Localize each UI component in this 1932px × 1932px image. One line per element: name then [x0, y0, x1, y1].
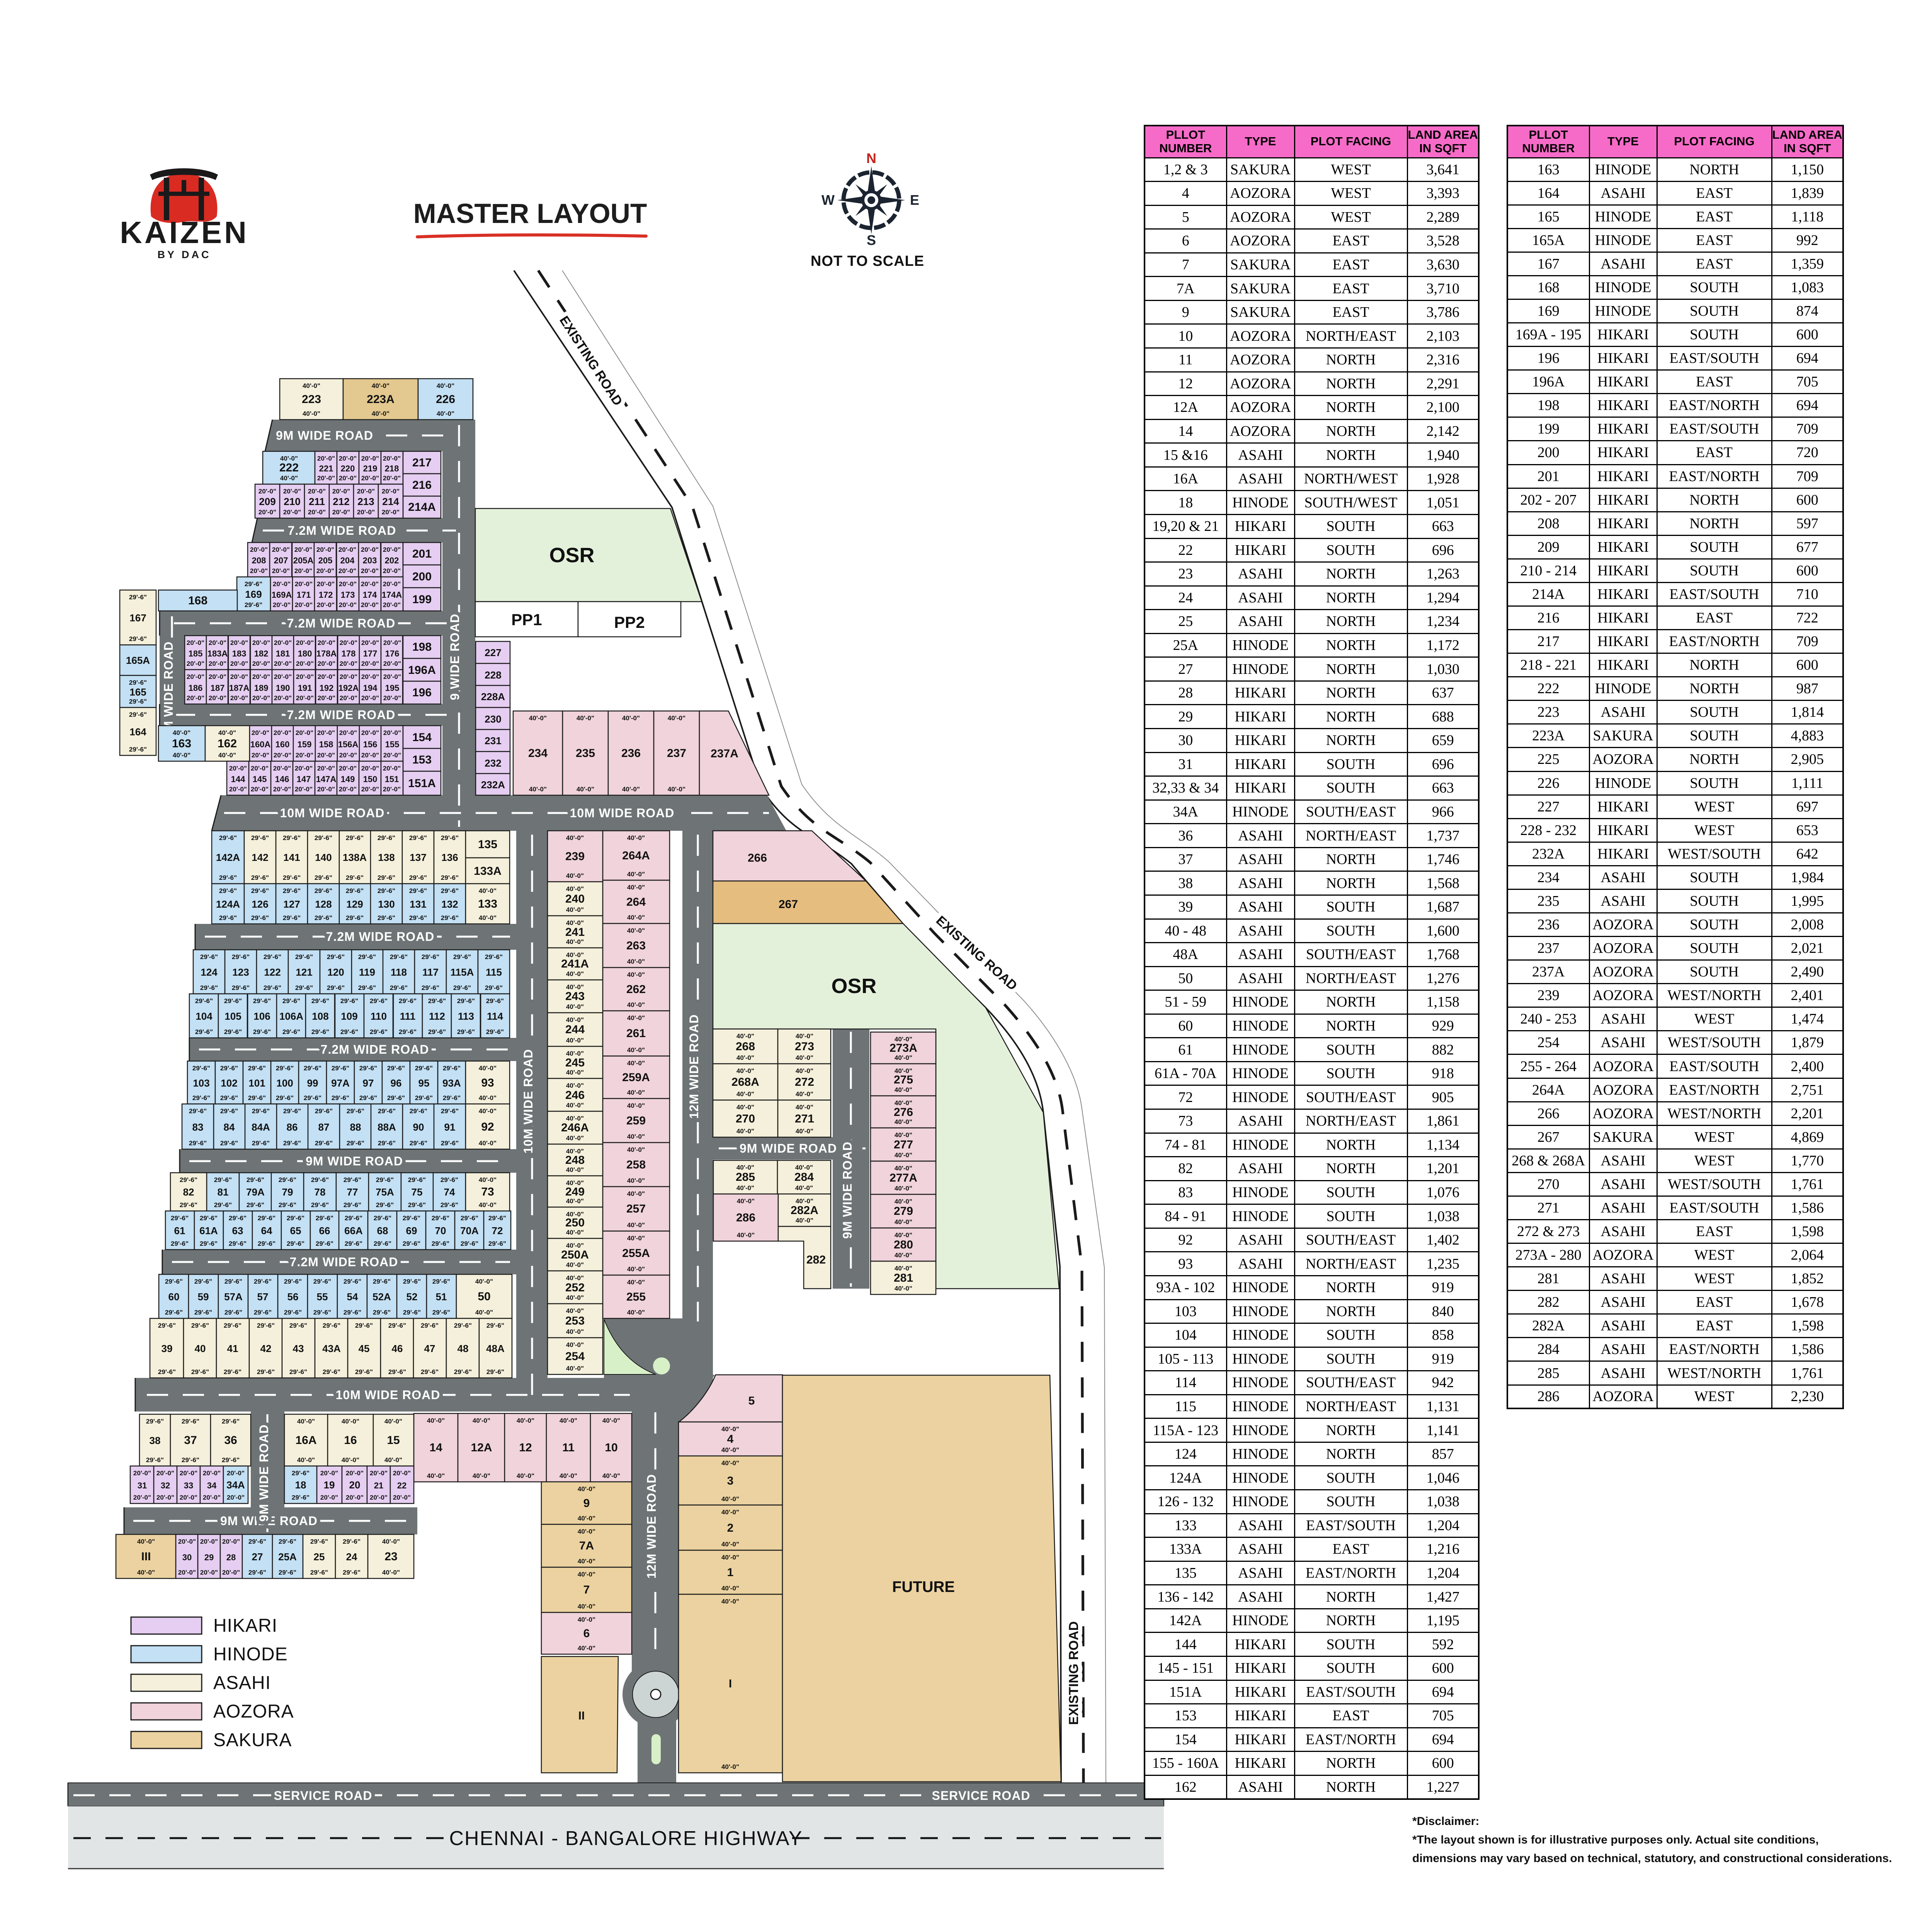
svg-text:20'-0": 20'-0" — [318, 673, 335, 680]
svg-text:40'-0": 40'-0" — [475, 1278, 493, 1285]
svg-text:29'-6": 29'-6" — [311, 997, 329, 1005]
svg-text:81: 81 — [218, 1186, 229, 1198]
svg-text:20'-0": 20'-0" — [383, 639, 401, 646]
svg-text:20'-0": 20'-0" — [383, 660, 401, 667]
svg-text:154: 154 — [412, 731, 432, 744]
svg-text:29'-6": 29'-6" — [310, 1569, 328, 1576]
svg-text:40'-0": 40'-0" — [627, 1089, 645, 1096]
svg-text:20'-0": 20'-0" — [252, 673, 270, 680]
svg-text:20'-0": 20'-0" — [295, 580, 313, 588]
svg-text:20'-0": 20'-0" — [317, 580, 335, 588]
svg-text:220: 220 — [341, 464, 355, 473]
svg-text:40'-0": 40'-0" — [627, 1309, 645, 1316]
svg-text:151: 151 — [385, 774, 399, 784]
svg-text:20'-0": 20'-0" — [259, 509, 276, 516]
svg-text:20'-0": 20'-0" — [273, 765, 291, 772]
svg-text:29'-6": 29'-6" — [283, 914, 301, 922]
svg-text:40'-0": 40'-0" — [736, 1067, 754, 1075]
svg-text:29'-6": 29'-6" — [287, 1240, 304, 1247]
svg-text:29'-6": 29'-6" — [182, 1418, 199, 1425]
svg-text:20'-0": 20'-0" — [259, 488, 276, 495]
svg-text:128: 128 — [315, 898, 332, 910]
svg-text:40'-0": 40'-0" — [895, 1165, 912, 1172]
svg-text:43A: 43A — [322, 1343, 341, 1354]
svg-text:23: 23 — [384, 1550, 397, 1563]
svg-text:29'-6": 29'-6" — [441, 834, 459, 842]
svg-text:20'-0": 20'-0" — [133, 1469, 151, 1477]
svg-text:140: 140 — [315, 852, 332, 863]
svg-text:40'-0": 40'-0" — [627, 1102, 645, 1109]
svg-text:2: 2 — [727, 1522, 734, 1534]
svg-text:167: 167 — [129, 612, 146, 624]
svg-text:110: 110 — [371, 1010, 387, 1022]
svg-text:29'-6": 29'-6" — [219, 887, 237, 895]
svg-text:12: 12 — [519, 1441, 532, 1454]
svg-text:20'-0": 20'-0" — [383, 567, 401, 575]
svg-text:34A: 34A — [226, 1479, 245, 1491]
svg-text:40'-0": 40'-0" — [796, 1090, 813, 1098]
svg-text:189: 189 — [254, 683, 269, 693]
svg-text:7A: 7A — [579, 1539, 594, 1552]
svg-text:SAKURA: SAKURA — [213, 1730, 292, 1750]
svg-text:40'-0": 40'-0" — [566, 1003, 584, 1010]
svg-text:267: 267 — [779, 898, 798, 911]
svg-text:40'-0": 40'-0" — [566, 1082, 584, 1089]
svg-text:249: 249 — [565, 1185, 585, 1198]
svg-text:9M WIDE ROAD: 9M WIDE ROAD — [306, 1154, 403, 1168]
svg-text:29'-6": 29'-6" — [410, 1139, 427, 1147]
svg-text:95: 95 — [418, 1077, 430, 1089]
svg-text:29'-6": 29'-6" — [432, 1278, 450, 1285]
svg-text:20'-0": 20'-0" — [308, 509, 326, 516]
svg-text:29'-6": 29'-6" — [344, 1309, 361, 1316]
svg-text:159: 159 — [298, 740, 312, 749]
svg-text:40'-0": 40'-0" — [736, 1128, 754, 1135]
svg-text:40'-0": 40'-0" — [627, 1221, 645, 1229]
svg-text:111: 111 — [400, 1010, 416, 1022]
svg-text:149: 149 — [341, 774, 355, 784]
svg-text:40'-0": 40'-0" — [517, 1417, 534, 1424]
svg-text:29'-6": 29'-6" — [194, 1278, 212, 1285]
svg-text:40'-0": 40'-0" — [566, 834, 584, 842]
svg-text:29'-6": 29'-6" — [399, 997, 417, 1005]
svg-text:29'-6": 29'-6" — [224, 1322, 241, 1329]
svg-text:40'-0": 40'-0" — [796, 1054, 813, 1061]
svg-text:37: 37 — [184, 1434, 197, 1447]
svg-text:250A: 250A — [561, 1248, 589, 1261]
svg-text:40'-0": 40'-0" — [895, 1067, 912, 1075]
svg-text:162: 162 — [218, 737, 237, 750]
svg-text:20'-0": 20'-0" — [230, 639, 248, 646]
svg-text:282: 282 — [806, 1253, 826, 1266]
svg-text:75: 75 — [412, 1186, 423, 1198]
svg-text:29'-6": 29'-6" — [224, 1028, 242, 1036]
svg-text:232: 232 — [485, 757, 501, 769]
svg-text:20'-0": 20'-0" — [283, 509, 301, 516]
svg-text:10M WIDE ROAD: 10M WIDE ROAD — [336, 1388, 440, 1402]
svg-text:29'-6": 29'-6" — [283, 1139, 301, 1147]
svg-text:40'-0": 40'-0" — [382, 1538, 400, 1545]
svg-text:7.2M WIDE ROAD: 7.2M WIDE ROAD — [326, 930, 435, 944]
svg-text:6: 6 — [583, 1627, 590, 1640]
svg-text:25: 25 — [314, 1551, 325, 1563]
svg-text:223: 223 — [302, 393, 321, 406]
svg-text:142: 142 — [252, 852, 268, 863]
svg-text:29'-6": 29'-6" — [327, 984, 345, 992]
svg-text:20'-0": 20'-0" — [252, 752, 269, 759]
svg-text:285: 285 — [736, 1171, 755, 1184]
svg-text:40'-0": 40'-0" — [566, 1341, 584, 1349]
svg-text:137: 137 — [410, 852, 426, 863]
svg-text:106A: 106A — [279, 1010, 303, 1022]
svg-text:177: 177 — [363, 649, 378, 658]
svg-text:262: 262 — [626, 983, 646, 996]
svg-text:132: 132 — [441, 898, 458, 910]
svg-text:40'-0": 40'-0" — [622, 714, 640, 722]
svg-text:92: 92 — [481, 1121, 494, 1133]
svg-text:217: 217 — [412, 456, 432, 469]
svg-text:29'-6": 29'-6" — [252, 1107, 270, 1115]
svg-text:74: 74 — [444, 1186, 455, 1198]
svg-text:29'-6": 29'-6" — [378, 1107, 396, 1115]
svg-text:20'-0": 20'-0" — [295, 601, 313, 609]
svg-text:29'-6": 29'-6" — [409, 887, 427, 895]
svg-text:20'-0": 20'-0" — [361, 567, 379, 575]
svg-text:29'-6": 29'-6" — [283, 1107, 301, 1115]
svg-text:115A: 115A — [451, 966, 474, 978]
svg-text:79A: 79A — [246, 1186, 265, 1198]
svg-text:40'-0": 40'-0" — [173, 729, 190, 736]
svg-text:40'-0": 40'-0" — [895, 1198, 912, 1205]
svg-text:20'-0": 20'-0" — [383, 694, 401, 702]
svg-text:40'-0": 40'-0" — [566, 1166, 584, 1173]
svg-text:20'-0": 20'-0" — [296, 660, 314, 667]
svg-text:40'-0": 40'-0" — [578, 1485, 595, 1493]
svg-text:40'-0": 40'-0" — [384, 1418, 402, 1425]
svg-text:29'-6": 29'-6" — [454, 1322, 472, 1329]
svg-text:29'-6": 29'-6" — [415, 1094, 433, 1102]
svg-text:20'-0": 20'-0" — [318, 660, 335, 667]
svg-text:40'-0": 40'-0" — [578, 1528, 595, 1535]
svg-text:90: 90 — [413, 1121, 424, 1133]
svg-text:NOT TO SCALE: NOT TO SCALE — [811, 253, 924, 269]
svg-text:29'-6": 29'-6" — [253, 997, 271, 1005]
svg-text:29'-6": 29'-6" — [220, 1094, 238, 1102]
svg-text:20'-0": 20'-0" — [274, 729, 291, 736]
svg-text:40: 40 — [195, 1343, 206, 1354]
svg-text:29'-6": 29'-6" — [224, 997, 242, 1005]
svg-text:29'-6": 29'-6" — [258, 1214, 276, 1222]
svg-text:141: 141 — [283, 852, 300, 863]
svg-text:10M WIDE ROAD: 10M WIDE ROAD — [521, 1049, 535, 1154]
svg-text:29'-6": 29'-6" — [311, 1176, 329, 1184]
svg-text:29'-6": 29'-6" — [358, 953, 376, 961]
svg-text:232A: 232A — [481, 779, 505, 791]
svg-text:40'-0": 40'-0" — [895, 1265, 912, 1272]
svg-text:84A: 84A — [252, 1121, 270, 1133]
svg-text:146: 146 — [275, 774, 289, 784]
svg-text:N: N — [866, 150, 876, 166]
svg-text:29'-6": 29'-6" — [158, 1322, 176, 1329]
svg-text:ASAHI: ASAHI — [213, 1673, 271, 1693]
svg-text:200: 200 — [412, 570, 432, 583]
svg-text:20'-0": 20'-0" — [370, 1494, 388, 1501]
svg-text:20'-0": 20'-0" — [361, 601, 379, 609]
svg-text:40'-0": 40'-0" — [721, 1585, 739, 1592]
svg-text:183A: 183A — [207, 649, 228, 658]
svg-text:PP1: PP1 — [511, 611, 542, 629]
svg-text:20'-0": 20'-0" — [230, 673, 248, 680]
svg-text:40'-0": 40'-0" — [721, 1446, 739, 1454]
svg-text:29'-6": 29'-6" — [332, 1094, 349, 1102]
svg-text:40'-0": 40'-0" — [566, 1115, 584, 1122]
svg-text:29'-6": 29'-6" — [340, 1028, 358, 1036]
svg-text:40'-0": 40'-0" — [627, 1060, 645, 1067]
svg-text:130: 130 — [378, 898, 395, 910]
svg-text:40'-0": 40'-0" — [895, 1054, 912, 1061]
svg-text:29'-6": 29'-6" — [370, 1028, 388, 1036]
svg-text:29'-6": 29'-6" — [486, 1368, 504, 1376]
svg-text:29'-6": 29'-6" — [282, 997, 300, 1005]
svg-text:20'-0": 20'-0" — [332, 509, 350, 516]
svg-text:29'-6": 29'-6" — [409, 874, 427, 881]
svg-text:40'-0": 40'-0" — [578, 1571, 595, 1578]
svg-text:29'-6": 29'-6" — [347, 1139, 364, 1147]
svg-text:280: 280 — [894, 1238, 913, 1251]
svg-text:255: 255 — [626, 1291, 646, 1303]
svg-text:171: 171 — [297, 590, 311, 600]
svg-text:29'-6": 29'-6" — [195, 1028, 213, 1036]
svg-text:156A: 156A — [338, 740, 359, 749]
svg-text:40'-0": 40'-0" — [560, 1417, 577, 1424]
svg-text:29'-6": 29'-6" — [165, 1309, 183, 1316]
svg-text:29'-6": 29'-6" — [461, 1214, 478, 1222]
svg-text:40'-0": 40'-0" — [473, 1417, 490, 1424]
svg-text:20'-0": 20'-0" — [274, 639, 292, 646]
svg-text:40'-0": 40'-0" — [895, 1036, 912, 1043]
svg-text:87: 87 — [318, 1121, 330, 1133]
svg-text:29'-6": 29'-6" — [359, 1065, 377, 1072]
svg-text:158: 158 — [319, 740, 333, 749]
svg-text:40'-0": 40'-0" — [668, 714, 685, 722]
svg-text:40'-0": 40'-0" — [627, 914, 645, 921]
svg-text:29'-6": 29'-6" — [254, 1278, 272, 1285]
svg-text:237: 237 — [667, 747, 686, 760]
svg-text:40'-0": 40'-0" — [627, 871, 645, 878]
svg-text:165: 165 — [129, 686, 146, 698]
svg-text:29'-6": 29'-6" — [488, 1240, 506, 1247]
svg-text:10: 10 — [605, 1441, 617, 1454]
svg-text:192A: 192A — [338, 683, 359, 693]
svg-text:29'-6": 29'-6" — [440, 1201, 458, 1209]
svg-text:20'-0": 20'-0" — [252, 694, 270, 702]
svg-text:29'-6": 29'-6" — [254, 1309, 272, 1316]
svg-text:20'-0": 20'-0" — [317, 729, 335, 736]
svg-text:286: 286 — [736, 1211, 755, 1224]
svg-text:20'-0": 20'-0" — [317, 601, 335, 609]
svg-text:20'-0": 20'-0" — [383, 580, 401, 588]
svg-text:29'-6": 29'-6" — [295, 953, 313, 961]
svg-text:281: 281 — [894, 1272, 913, 1284]
svg-text:29'-6": 29'-6" — [129, 594, 147, 601]
svg-text:40'-0": 40'-0" — [173, 752, 190, 759]
svg-text:136: 136 — [441, 852, 458, 863]
svg-text:284: 284 — [794, 1171, 814, 1184]
svg-text:BY DAC: BY DAC — [157, 249, 211, 260]
svg-text:271: 271 — [795, 1112, 814, 1125]
svg-text:219: 219 — [363, 464, 378, 473]
svg-text:40'-0": 40'-0" — [566, 1037, 584, 1044]
svg-text:20'-0": 20'-0" — [339, 580, 357, 588]
svg-text:20'-0": 20'-0" — [227, 1469, 245, 1477]
svg-text:11: 11 — [562, 1441, 575, 1454]
svg-text:40'-0": 40'-0" — [895, 1218, 912, 1226]
svg-text:40'-0": 40'-0" — [479, 1094, 497, 1102]
svg-text:OSR: OSR — [549, 544, 594, 567]
svg-text:20'-0": 20'-0" — [317, 786, 335, 793]
svg-text:277A: 277A — [889, 1172, 917, 1184]
svg-text:20'-0": 20'-0" — [203, 1494, 221, 1501]
svg-text:29'-6": 29'-6" — [219, 834, 237, 842]
svg-text:163: 163 — [172, 737, 191, 750]
svg-text:OSR: OSR — [831, 975, 876, 998]
svg-text:40'-0": 40'-0" — [668, 786, 685, 793]
svg-text:20'-0": 20'-0" — [294, 567, 312, 575]
svg-text:40'-0": 40'-0" — [578, 1645, 595, 1652]
svg-text:73: 73 — [481, 1185, 494, 1198]
svg-text:29'-6": 29'-6" — [376, 1176, 394, 1184]
svg-text:40'-0": 40'-0" — [721, 1541, 739, 1548]
svg-text:48: 48 — [457, 1343, 469, 1354]
svg-text:20'-0": 20'-0" — [229, 786, 247, 793]
svg-text:20'-0": 20'-0" — [227, 1494, 245, 1501]
svg-text:29'-6": 29'-6" — [220, 1065, 238, 1072]
svg-text:29'-6": 29'-6" — [403, 1278, 421, 1285]
svg-text:180: 180 — [298, 649, 312, 658]
svg-text:29'-6": 29'-6" — [313, 1278, 331, 1285]
svg-text:29'-6": 29'-6" — [441, 914, 459, 922]
svg-text:20'-0": 20'-0" — [383, 765, 401, 772]
svg-text:15: 15 — [387, 1434, 400, 1447]
svg-text:40'-0": 40'-0" — [721, 1763, 739, 1770]
svg-text:29'-6": 29'-6" — [171, 1214, 189, 1222]
svg-text:40'-0": 40'-0" — [479, 887, 497, 895]
svg-text:40'-0": 40'-0" — [578, 1616, 595, 1623]
svg-text:29'-6": 29'-6" — [247, 1201, 264, 1209]
svg-text:20'-0": 20'-0" — [274, 660, 292, 667]
svg-text:29'-6": 29'-6" — [283, 874, 301, 881]
svg-text:29'-6": 29'-6" — [315, 1139, 333, 1147]
svg-text:40'-0": 40'-0" — [895, 1285, 912, 1292]
svg-text:29'-6": 29'-6" — [374, 1240, 391, 1247]
svg-text:29'-6": 29'-6" — [264, 984, 281, 992]
svg-text:40'-0": 40'-0" — [137, 1569, 155, 1576]
svg-text:202: 202 — [385, 556, 399, 565]
svg-text:29'-6": 29'-6" — [486, 1322, 504, 1329]
svg-text:138A: 138A — [343, 852, 367, 863]
svg-text:29'-6": 29'-6" — [409, 834, 427, 842]
svg-text:40'-0": 40'-0" — [602, 1417, 620, 1424]
svg-text:10M WIDE ROAD: 10M WIDE ROAD — [570, 806, 675, 820]
svg-text:29'-6": 29'-6" — [247, 1176, 264, 1184]
svg-text:246A: 246A — [561, 1121, 589, 1134]
svg-text:40'-0": 40'-0" — [895, 1118, 912, 1126]
svg-text:42: 42 — [260, 1343, 272, 1354]
svg-text:52: 52 — [406, 1291, 418, 1303]
svg-text:40'-0": 40'-0" — [566, 919, 584, 927]
svg-text:40'-0": 40'-0" — [721, 1425, 739, 1433]
svg-text:40'-0": 40'-0" — [721, 1495, 739, 1503]
svg-text:234: 234 — [528, 747, 548, 760]
svg-text:40'-0": 40'-0" — [627, 1146, 645, 1153]
svg-text:29'-6": 29'-6" — [340, 997, 358, 1005]
svg-text:40'-0": 40'-0" — [627, 1190, 645, 1197]
svg-text:29'-6": 29'-6" — [387, 1094, 405, 1102]
svg-text:40'-0": 40'-0" — [566, 1229, 584, 1236]
svg-text:20'-0": 20'-0" — [209, 673, 226, 680]
svg-text:248: 248 — [565, 1154, 585, 1167]
svg-text:7.2M WIDE ROAD: 7.2M WIDE ROAD — [321, 1043, 429, 1056]
svg-text:40'-0": 40'-0" — [342, 1418, 359, 1425]
svg-text:40'-0": 40'-0" — [622, 786, 640, 793]
svg-text:20'-0": 20'-0" — [222, 1569, 240, 1576]
svg-text:40'-0": 40'-0" — [479, 914, 497, 922]
svg-text:272: 272 — [795, 1076, 814, 1088]
svg-text:40'-0": 40'-0" — [566, 1197, 584, 1205]
svg-text:29'-6": 29'-6" — [192, 1065, 210, 1072]
svg-text:20'-0": 20'-0" — [317, 752, 335, 759]
svg-text:20'-0": 20'-0" — [187, 694, 204, 702]
svg-text:40'-0": 40'-0" — [384, 1456, 402, 1464]
svg-text:91: 91 — [444, 1121, 456, 1133]
svg-text:29'-6": 29'-6" — [248, 1065, 266, 1072]
svg-text:40'-0": 40'-0" — [566, 1242, 584, 1249]
svg-text:20'-0": 20'-0" — [393, 1494, 411, 1501]
svg-text:243: 243 — [565, 990, 585, 1003]
svg-text:119: 119 — [359, 966, 375, 978]
svg-text:29'-6": 29'-6" — [355, 1322, 373, 1329]
svg-text:40'-0": 40'-0" — [796, 1197, 813, 1205]
svg-text:29'-6": 29'-6" — [192, 1094, 210, 1102]
svg-text:20'-0": 20'-0" — [383, 474, 401, 482]
svg-text:S: S — [867, 232, 876, 248]
svg-text:218: 218 — [385, 464, 399, 473]
svg-text:198: 198 — [412, 641, 432, 653]
svg-text:29: 29 — [204, 1553, 214, 1562]
svg-text:129: 129 — [346, 898, 363, 910]
svg-text:29'-6": 29'-6" — [453, 953, 471, 961]
svg-text:29'-6": 29'-6" — [257, 1322, 275, 1329]
svg-text:20'-0": 20'-0" — [339, 474, 357, 482]
svg-text:40'-0": 40'-0" — [796, 1067, 813, 1075]
svg-text:40'-0": 40'-0" — [796, 1032, 813, 1040]
svg-text:40'-0": 40'-0" — [566, 906, 584, 913]
svg-text:40'-0": 40'-0" — [566, 1016, 584, 1024]
svg-text:40'-0": 40'-0" — [479, 1065, 497, 1072]
svg-text:40'-0": 40'-0" — [627, 1014, 645, 1022]
svg-text:20'-0": 20'-0" — [296, 639, 314, 646]
svg-text:29'-6": 29'-6" — [376, 1201, 394, 1209]
svg-text:29'-6": 29'-6" — [346, 887, 364, 895]
svg-text:20'-0": 20'-0" — [296, 673, 314, 680]
svg-text:40'-0": 40'-0" — [737, 1231, 755, 1239]
svg-text:5: 5 — [748, 1395, 755, 1407]
svg-text:124A: 124A — [216, 898, 240, 910]
svg-text:147A: 147A — [316, 774, 337, 784]
svg-text:20'-0": 20'-0" — [133, 1494, 151, 1501]
svg-text:40'-0": 40'-0" — [721, 1459, 739, 1467]
svg-text:105: 105 — [224, 1010, 241, 1022]
